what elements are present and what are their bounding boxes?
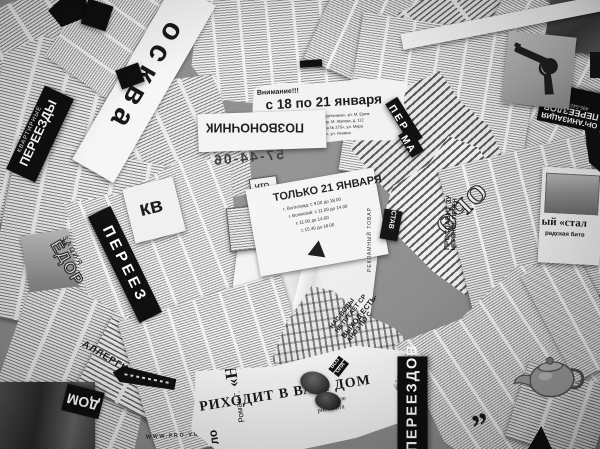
roman-label: Роман Г. bbox=[233, 390, 247, 423]
dark-wedge bbox=[590, 52, 600, 78]
steel-headline: ый «стал bbox=[541, 216, 587, 230]
ad-logo-triangle bbox=[308, 239, 328, 257]
reklamny-vertical-label: РЕКЛАМНЫЙ ТОВАР bbox=[368, 207, 373, 272]
pereezdov-vertical-banner: ПЕРЕЕЗДОВ bbox=[398, 357, 428, 449]
handgun-photo bbox=[501, 31, 576, 110]
kv-fragment-text: кв bbox=[137, 194, 165, 221]
dom-label: ДОМ bbox=[65, 390, 100, 413]
pereezdov-vertical-letters: ПЕРЕЕЗДОВ bbox=[405, 343, 421, 449]
teapot-sketch bbox=[502, 336, 593, 409]
stalingrad-article-scrap: ый «стал радская битв bbox=[538, 166, 600, 265]
stav-letters: СТАВ bbox=[386, 210, 397, 230]
lo-label: ло bbox=[206, 429, 221, 446]
pozvonochnik-scrap: ПОЗВОНОЧНИК bbox=[197, 110, 326, 152]
steel-subline: радская битв bbox=[545, 231, 585, 239]
landscape-photo bbox=[544, 173, 600, 216]
proslavit-block: ПРОСЛАВИТ ЗУ НЕРВНОЕ ПЕРЕН bbox=[444, 195, 460, 250]
pozvonochnik-headline: ПОЗВОНОЧНИК bbox=[206, 120, 304, 133]
newspaper-collage-photo: осква кв КВАРТИРНЫЕ ПЕРЕЕЗДЫ Внимание!!!… bbox=[0, 0, 600, 449]
